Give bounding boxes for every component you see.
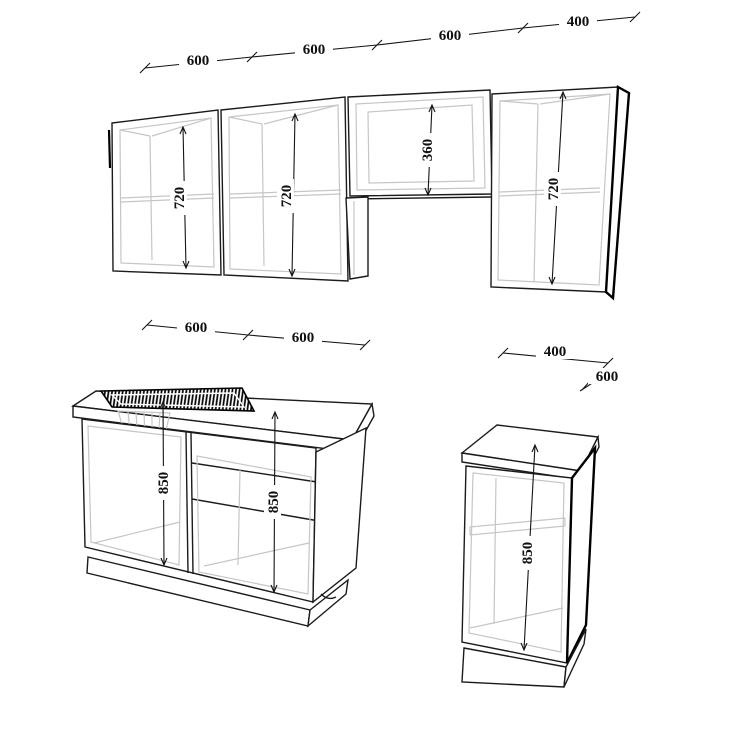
dim-text: 720 <box>172 187 188 210</box>
dim-label-baseright-600: 600 <box>588 368 626 385</box>
dim-label-top-400: 400 <box>559 13 597 30</box>
dim-label-top-600-1: 600 <box>179 52 217 69</box>
sink <box>101 388 254 411</box>
base-left-dimension-line: 600 600 <box>142 319 370 350</box>
dim-text: 600 <box>185 320 208 336</box>
base-right-dimension-lines: 400 600 <box>498 343 626 391</box>
dim-text: 720 <box>279 185 295 208</box>
base-unit-left: 850 850 <box>73 388 374 626</box>
base-cabinet-right: 850 <box>462 425 599 687</box>
top-dimension-line: 600 600 600 400 <box>140 12 640 73</box>
dim-label-baseright-400: 400 <box>536 343 574 360</box>
dim-text: 600 <box>303 42 326 58</box>
dimension-tick <box>142 320 370 350</box>
dim-text: 850 <box>156 472 172 495</box>
dim-text: 600 <box>292 330 315 346</box>
wall-cabinet-2-side-panel <box>346 197 368 279</box>
dim-label-top-600-2: 600 <box>295 41 333 58</box>
wall-cabinet-1 <box>109 110 221 275</box>
dim-text: 850 <box>520 542 536 565</box>
dim-text: 400 <box>544 344 567 360</box>
dim-text: 360 <box>420 139 436 162</box>
kitchen-cabinet-drawing: 600 600 600 400 <box>0 0 755 731</box>
dim-text: 600 <box>439 28 462 44</box>
dim-label-top-600-3: 600 <box>431 27 469 44</box>
dim-text: 600 <box>187 53 210 69</box>
base-left-side-panel <box>313 428 366 602</box>
dim-text: 850 <box>266 491 282 514</box>
drawing-canvas: 600 600 600 400 <box>0 0 755 731</box>
base-right-side-panel <box>567 448 595 663</box>
dim-text: 720 <box>546 178 562 201</box>
dim-text: 400 <box>567 14 590 30</box>
dim-label-baseleft-600-2: 600 <box>284 329 322 346</box>
dim-label-baseleft-600-1: 600 <box>177 319 215 336</box>
dim-text: 600 <box>596 369 619 385</box>
